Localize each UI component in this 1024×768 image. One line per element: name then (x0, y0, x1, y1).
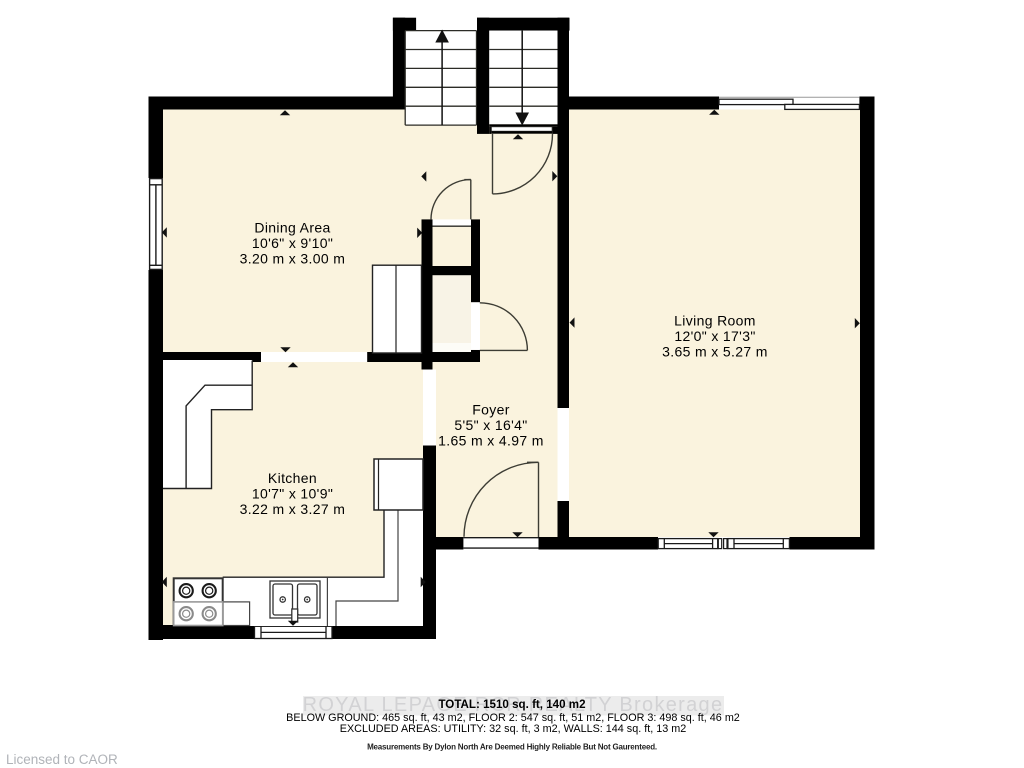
svg-text:Licensed to CAOR: Licensed to CAOR (6, 752, 118, 767)
svg-text:Living Room: Living Room (674, 313, 756, 329)
svg-text:BELOW GROUND: 465 sq. ft, 43 m: BELOW GROUND: 465 sq. ft, 43 m2, FLOOR 2… (286, 712, 740, 724)
svg-text:3.20 m x 3.00 m: 3.20 m x 3.00 m (240, 250, 346, 266)
svg-text:TOTAL: 1510 sq. ft, 140 m2: TOTAL: 1510 sq. ft, 140 m2 (438, 698, 585, 711)
svg-text:5'5" x 16'4": 5'5" x 16'4" (454, 417, 527, 433)
svg-text:Kitchen: Kitchen (268, 470, 317, 486)
svg-text:3.22 m x 3.27 m: 3.22 m x 3.27 m (240, 501, 346, 517)
svg-text:12'0" x 17'3": 12'0" x 17'3" (674, 328, 755, 344)
svg-text:10'7" x 10'9": 10'7" x 10'9" (252, 486, 333, 502)
svg-text:Foyer: Foyer (472, 402, 510, 418)
svg-text:Dining Area: Dining Area (254, 220, 330, 236)
svg-text:Measurements By Dylon North Ar: Measurements By Dylon North Are Deemed H… (367, 743, 657, 752)
svg-text:EXCLUDED AREAS: UTILITY: 32 sq: EXCLUDED AREAS: UTILITY: 32 sq. ft, 3 m2… (340, 723, 686, 735)
svg-text:10'6" x 9'10": 10'6" x 9'10" (252, 235, 333, 251)
svg-text:1.65 m x 4.97 m: 1.65 m x 4.97 m (438, 432, 544, 448)
svg-text:3.65 m x 5.27 m: 3.65 m x 5.27 m (662, 343, 768, 359)
